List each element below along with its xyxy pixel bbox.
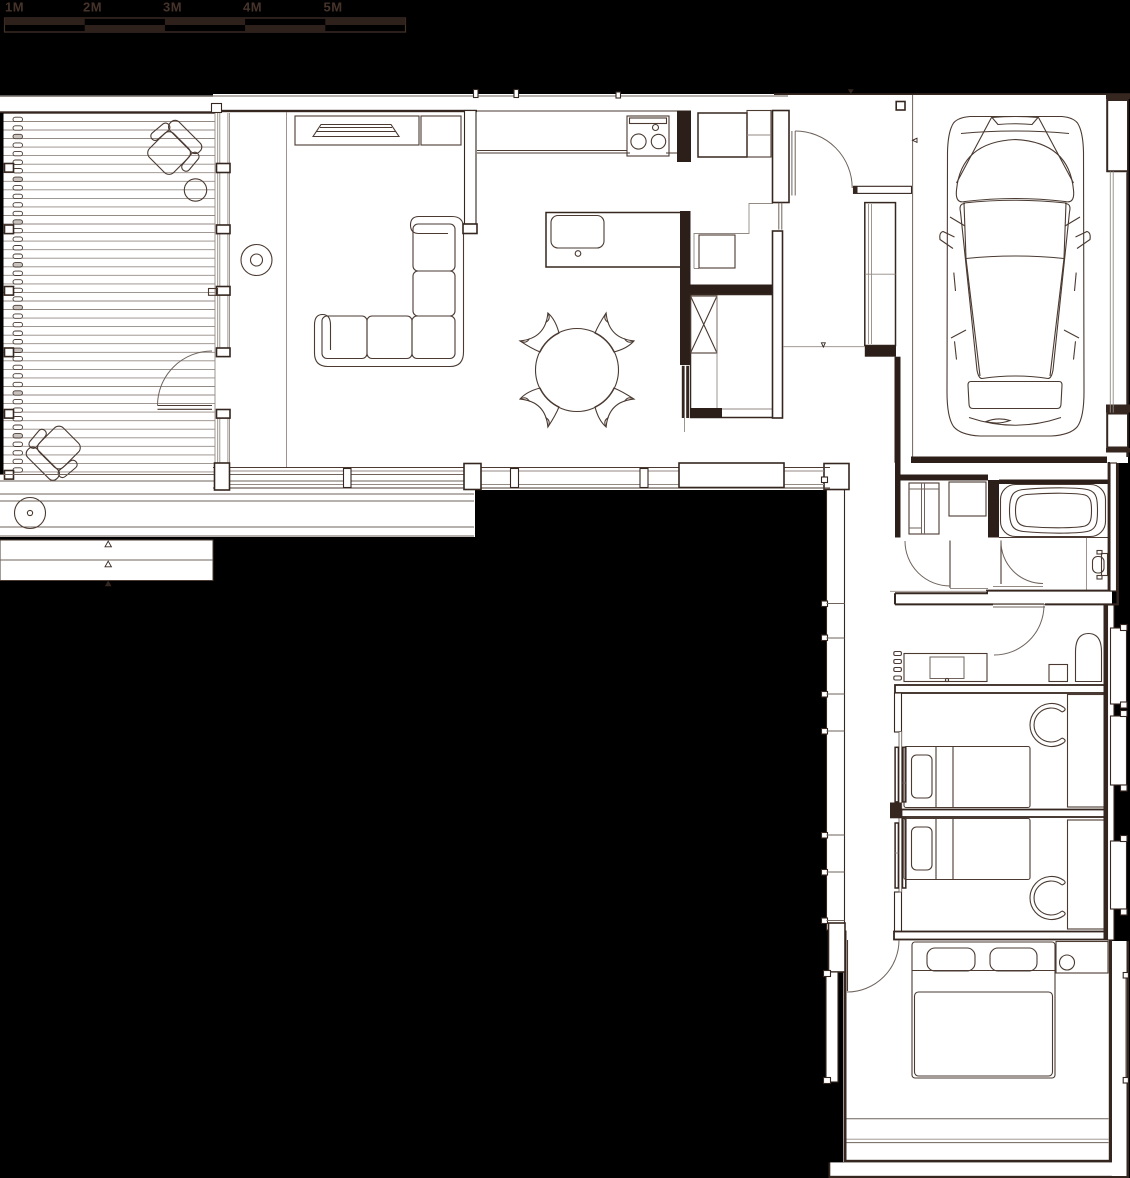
svg-text:4M: 4M <box>243 0 262 15</box>
svg-text:3M: 3M <box>163 0 182 15</box>
svg-text:5M: 5M <box>324 0 343 15</box>
svg-text:2M: 2M <box>83 0 102 15</box>
svg-text:1M: 1M <box>5 0 24 15</box>
